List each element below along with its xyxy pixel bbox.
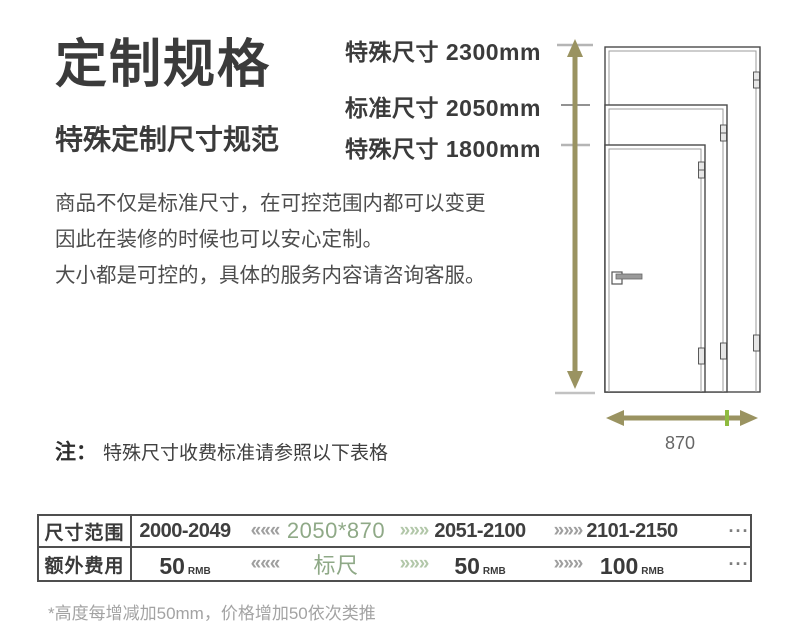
description-line: 因此在装修的时候也可以安心定制。 [55,222,486,258]
table-row-size-range: 尺寸范围 2000-2049 ««« 2050*870 »»» 2051-210… [39,516,750,548]
ellipsis-more: ··· [719,548,759,580]
size-range-3: 2101-2150 [577,516,687,546]
fee-2-unit: RMB [483,566,506,577]
door-1800 [605,145,705,392]
fee-3-unit: RMB [641,566,664,577]
note-text: 特殊尺寸收费标准请参照以下表格 [103,443,388,464]
fee-1: 50 RMB [135,548,235,580]
height-label-2050: 标准尺寸 2050mm [345,89,541,123]
height-label-1800: 特殊尺寸 1800mm [345,130,541,164]
fee-3: 100 RMB [577,548,687,580]
row-header-extra-fee: 额外费用 [39,548,132,580]
height-label-2300: 特殊尺寸 2300mm [345,33,541,67]
fee-3-value: 100 [600,553,638,580]
fee-1-unit: RMB [188,566,211,577]
description-line: 商品不仅是标准尺寸，在可控范围内都可以变更 [55,186,486,222]
fee-2: 50 RMB [430,548,530,580]
row-header-size-range: 尺寸范围 [39,516,132,546]
description-line: 大小都是可控的，具体的服务内容请咨询客服。 [55,258,486,294]
size-fee-table: 尺寸范围 2000-2049 ««« 2050*870 »»» 2051-210… [37,514,752,582]
page-title: 定制规格 [55,22,271,97]
size-range-2: 2051-2100 [430,516,530,546]
table-row-extra-fee: 额外费用 50 RMB ««« 标尺 »»» 50 RMB »»» 100 RM… [39,548,750,580]
note-prefix: 注： [55,441,97,464]
footnote: *高度每增减加50mm，价格增加50依次类推 [48,599,376,624]
product-spec-page: { "page": { "title": "定制规格", "subtitle":… [0,0,790,632]
height-arrow [555,39,595,393]
door-size-diagram: 870 [545,25,790,460]
size-range-1: 2000-2049 [135,516,235,546]
fee-2-value: 50 [454,553,480,580]
description: 商品不仅是标准尺寸，在可控范围内都可以变更 因此在装修的时候也可以安心定制。 大… [55,186,486,294]
standard-size-highlight: 2050*870 [276,516,396,546]
page-subtitle: 特殊定制尺寸规范 [55,118,279,158]
door-width-value: 870 [665,433,695,453]
ellipsis-more: ··· [719,516,759,546]
note: 注：特殊尺寸收费标准请参照以下表格 [55,436,388,466]
width-arrow [606,410,758,426]
fee-1-value: 50 [159,553,185,580]
standard-rule-highlight: 标尺 [276,548,396,580]
